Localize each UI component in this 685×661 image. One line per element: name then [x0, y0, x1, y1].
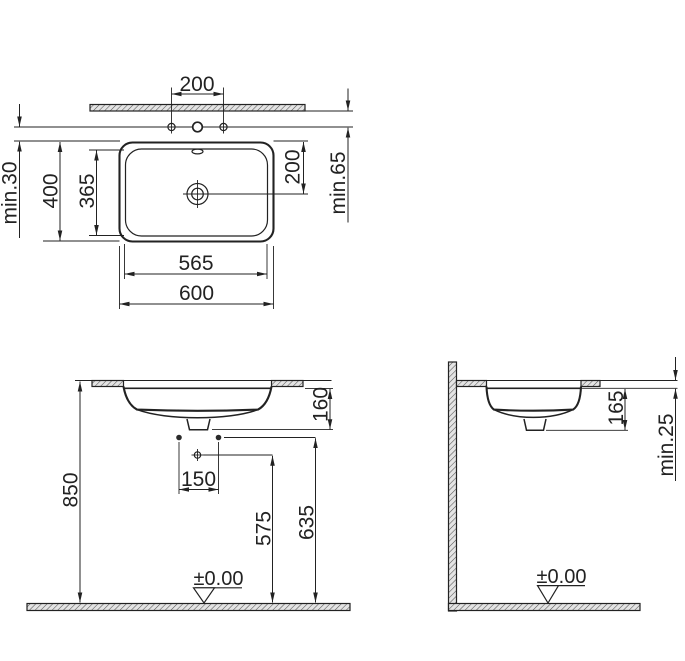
front-counter-left: [92, 381, 124, 387]
dim-label-outer-depth: 400: [40, 173, 63, 208]
front-drain-stub: [187, 419, 210, 430]
side-basin-body: [487, 387, 582, 411]
front-datum-level: ±0.00: [194, 568, 244, 603]
front-datum-label: ±0.00: [194, 568, 244, 590]
dim-rim-height: 850: [60, 382, 83, 603]
supply-connection-left: [176, 435, 182, 441]
dim-label-tap-spacing: 200: [179, 73, 214, 96]
dim-label-min-counter-thickness: min.25: [655, 413, 678, 476]
dim-label-rim-height: 850: [60, 472, 83, 507]
technical-drawing: 200 200 min.65 min.30 400: [0, 0, 685, 656]
dim-label-min-tap-to-rim: min.30: [0, 161, 22, 224]
dim-label-min-wall-to-tap: min.65: [327, 151, 350, 214]
dim-min-wall-to-tap: min.65: [327, 89, 350, 223]
dim-label-waste-height: 575: [253, 511, 276, 546]
dim-supply-spacing: 150: [179, 442, 219, 494]
supply-connection-right: [216, 435, 222, 441]
dim-label-side-drain-depth: 165: [605, 390, 628, 425]
side-floor: [449, 604, 641, 611]
dim-label-supply-spacing: 150: [181, 468, 216, 491]
plan-view: 200 200 min.65 min.30 400: [0, 73, 353, 309]
front-basin-body: [124, 387, 272, 411]
dim-side-drain-depth: 165: [605, 389, 628, 430]
side-drain-stub: [524, 419, 546, 430]
side-view: 165 min.25 ±0.00: [449, 357, 679, 611]
side-datum-triangle: [538, 586, 559, 603]
dim-inner-depth: 365: [76, 150, 124, 236]
dim-label-supply-height: 635: [296, 505, 319, 540]
dim-waste-height: 575: [253, 456, 276, 603]
dim-label-inner-depth: 365: [76, 173, 99, 208]
dim-min-counter-thickness: min.25: [655, 357, 678, 481]
dim-label-inner-width: 565: [178, 252, 213, 275]
front-floor: [27, 604, 350, 611]
dim-tap-spacing: 200: [172, 73, 224, 96]
drain-symbol-plan: [183, 180, 212, 208]
side-datum-level: ±0.00: [537, 566, 587, 603]
plan-wall-strip: [90, 105, 305, 112]
side-counter-right: [581, 381, 600, 387]
dim-min-tap-to-rim: min.30: [0, 104, 22, 238]
front-datum-triangle: [194, 588, 215, 603]
dim-label-front-drain-depth: 160: [310, 387, 333, 422]
dim-rim-to-drain: 200: [282, 142, 305, 194]
dim-inner-width: 565: [125, 244, 268, 279]
side-datum-label: ±0.00: [537, 566, 587, 588]
side-counter-left: [457, 381, 487, 387]
dim-label-rim-to-drain: 200: [282, 149, 305, 184]
dim-supply-height: 635: [296, 438, 319, 602]
side-wall: [449, 362, 457, 611]
waste-outlet-marker: [192, 449, 204, 461]
dim-front-drain-depth: 160: [212, 387, 333, 430]
drawing-canvas: 200 200 min.65 min.30 400: [0, 0, 685, 656]
tap-hole-center: [193, 122, 203, 132]
dim-label-outer-width: 600: [179, 282, 214, 305]
front-counter-right: [272, 381, 304, 387]
front-view: 160 150 850 575: [27, 381, 350, 611]
overflow-slot: [192, 149, 203, 154]
